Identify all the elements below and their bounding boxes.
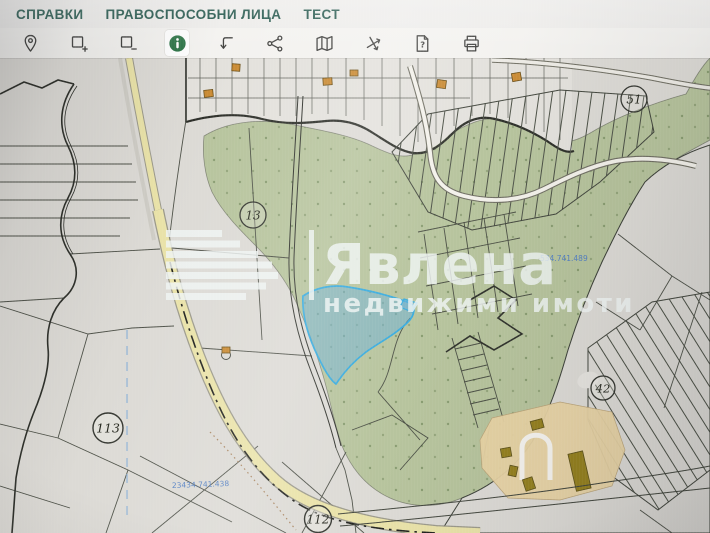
watermark-tagline: недвижими имоти	[323, 289, 635, 319]
printer-icon	[461, 33, 482, 54]
map-area: 13 51 113 112 42 23434.741.438 534.741.4…	[0, 58, 710, 533]
zone-label-51: 51	[626, 93, 641, 107]
crossing-roads-icon	[363, 33, 384, 54]
cadastral-map-canvas[interactable]: 13 51 113 112 42 23434.741.438 534.741.4…	[0, 58, 710, 533]
info-button[interactable]	[165, 30, 189, 56]
location-pin-icon	[20, 33, 41, 54]
app-window: СПРАВКИ ПРАВОСПОСОБНИ ЛИЦА ТЕСТ	[0, 0, 710, 533]
zone-13: 13	[240, 202, 266, 228]
printer-button[interactable]	[459, 30, 483, 56]
zone-51: 51	[621, 86, 647, 112]
select-area-remove-icon	[118, 33, 139, 54]
zone-112: 112	[305, 506, 332, 533]
zone-label-13: 13	[245, 209, 261, 223]
folded-map-icon	[314, 33, 335, 54]
menu-item-test[interactable]: ТЕСТ	[303, 7, 340, 22]
farmstead	[480, 402, 625, 500]
select-area-add-button[interactable]	[67, 30, 91, 56]
document-question-icon: ?	[412, 33, 433, 54]
zone-label-112: 112	[307, 513, 330, 527]
info-icon	[167, 33, 188, 54]
bent-arrow-icon	[216, 33, 237, 54]
menubar: СПРАВКИ ПРАВОСПОСОБНИ ЛИЦА ТЕСТ	[0, 0, 710, 28]
select-area-remove-button[interactable]	[116, 30, 140, 56]
zone-label-42: 42	[595, 382, 611, 396]
select-area-add-icon	[69, 33, 90, 54]
document-question-button[interactable]: ?	[410, 30, 434, 56]
crossing-roads-button[interactable]	[361, 30, 385, 56]
menu-item-pravosposobni-litsa[interactable]: ПРАВОСПОСОБНИ ЛИЦА	[106, 7, 282, 22]
bent-arrow-button[interactable]	[214, 30, 238, 56]
location-pin-button[interactable]	[18, 30, 42, 56]
svg-text:?: ?	[420, 39, 425, 49]
map-toolbar: ?	[0, 28, 710, 58]
share-nodes-button[interactable]	[263, 30, 287, 56]
zone-label-113: 113	[96, 421, 120, 436]
folded-map-button[interactable]	[312, 30, 336, 56]
menu-item-spravki[interactable]: СПРАВКИ	[16, 7, 84, 22]
zone-113: 113	[93, 413, 123, 443]
share-nodes-icon	[265, 33, 286, 54]
zone-42: 42	[591, 376, 615, 400]
